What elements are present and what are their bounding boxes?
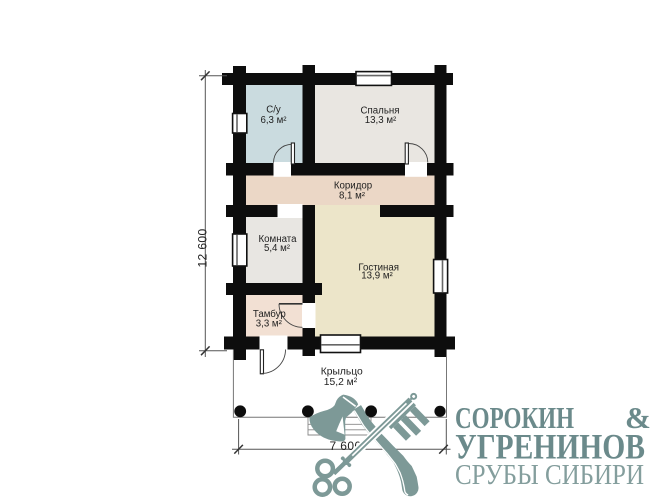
svg-text:С/у: С/у bbox=[266, 105, 281, 116]
svg-text:6,3 м²: 6,3 м² bbox=[260, 115, 287, 126]
svg-text:3,3 м²: 3,3 м² bbox=[256, 319, 283, 330]
svg-text:12 600: 12 600 bbox=[196, 228, 210, 267]
svg-text:13,3 м²: 13,3 м² bbox=[365, 115, 397, 126]
svg-text:13,9 м²: 13,9 м² bbox=[361, 271, 393, 282]
svg-text:СРУБЫ СИБИРИ: СРУБЫ СИБИРИ bbox=[455, 459, 644, 491]
svg-text:8,1 м²: 8,1 м² bbox=[339, 191, 366, 202]
svg-text:Крыльцо: Крыльцо bbox=[321, 367, 363, 378]
svg-text:15,2 м²: 15,2 м² bbox=[324, 377, 358, 388]
svg-text:5,4 м²: 5,4 м² bbox=[264, 243, 291, 254]
